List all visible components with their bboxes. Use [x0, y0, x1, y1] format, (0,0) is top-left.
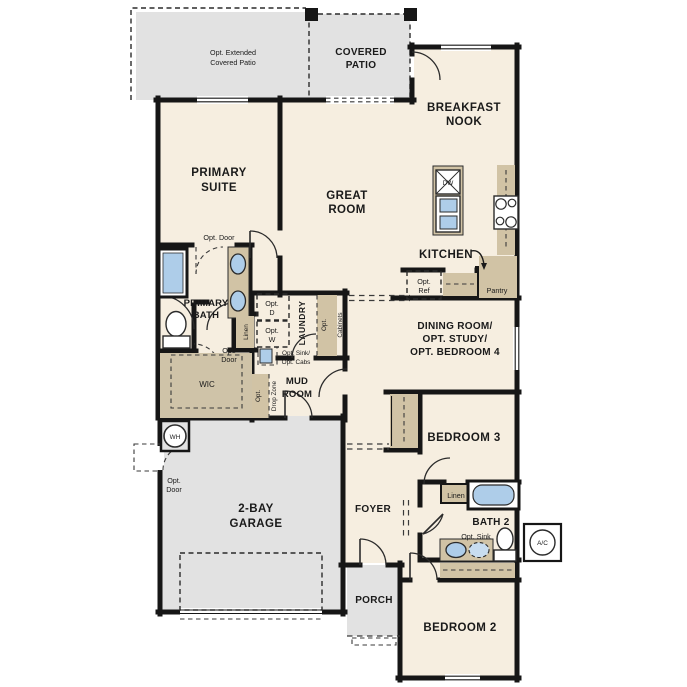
kitchen-label: KITCHEN	[419, 249, 473, 261]
opt-door-wic-label: Opt.	[222, 346, 236, 355]
water-heater-label: WH	[170, 434, 181, 441]
opt-extended-patio-label: Opt. Extended	[210, 48, 256, 57]
covered-patio-label: COVERED	[335, 47, 387, 58]
opt-cabinets-label: Opt.	[321, 319, 328, 331]
opt-dryer-label: Opt.	[265, 299, 279, 308]
opt-door-wic-label: Door	[221, 355, 237, 364]
opt-extended-patio-label: Covered Patio	[210, 58, 256, 67]
opt-door-suite-label: Opt. Door	[203, 233, 235, 242]
opt-drop-zone-label: Opt.	[255, 390, 262, 402]
foyer-label: FOYER	[355, 504, 391, 515]
opt-sink-cabs-label: Opt. Sink/	[282, 350, 310, 357]
great-room-label: ROOM	[328, 204, 365, 216]
laundry-label: LAUNDRY	[297, 301, 307, 346]
bath2-sink	[446, 543, 466, 558]
opt-door-garage-label: Opt.	[167, 476, 181, 485]
linen-bath2-label: Linen	[447, 491, 465, 500]
covered-patio-label: PATIO	[346, 60, 377, 71]
opt-washer-label: Opt.	[265, 326, 279, 335]
vanity-sink	[231, 291, 246, 311]
porch-step	[352, 638, 396, 645]
opt-sink-bath2-label: Opt. Sink	[461, 532, 491, 541]
primary-bath-label: BATH	[193, 310, 219, 321]
ac-label: A/C	[537, 540, 548, 547]
dining-label: OPT. BEDROOM 4	[410, 347, 500, 358]
opt-ref-label: Opt.	[417, 277, 431, 286]
great-room-label: GREAT	[326, 190, 367, 202]
toilet-primary	[166, 312, 186, 337]
opt-washer-label: W	[269, 335, 276, 344]
bath2-opt-sink	[469, 543, 489, 558]
opt-door-garage-label: Door	[166, 485, 182, 494]
primary-bath-label: PRIMARY	[184, 298, 229, 309]
breakfast-nook-label: NOOK	[446, 116, 482, 128]
opt-ref-label: Ref	[418, 286, 429, 295]
patio-post	[305, 8, 318, 21]
toilet-bath2	[497, 528, 513, 550]
mud-room-label: ROOM	[282, 389, 312, 400]
bath2-label: BATH 2	[472, 517, 509, 528]
bedroom3-label: BEDROOM 3	[427, 432, 500, 444]
floor-plan-drawing: Opt. Extended Covered Patio COVERED PATI…	[0, 0, 687, 687]
opt-sink-cabs-label: Opt. Cabs	[282, 359, 311, 366]
garage-label: 2-BAY	[238, 503, 273, 515]
wic-label: WIC	[199, 380, 215, 389]
opt-drop-zone-label: Drop Zone	[271, 380, 278, 411]
breakfast-nook-label: BREAKFAST	[427, 102, 501, 114]
vanity-sink	[231, 254, 246, 274]
opt-dryer-label: D	[269, 308, 274, 317]
garage-label: GARAGE	[230, 518, 283, 530]
linen-primary-label: Linen	[243, 324, 250, 340]
laundry-opt-sink	[260, 349, 272, 363]
primary-suite-label: PRIMARY	[191, 167, 246, 179]
porch-label: PORCH	[355, 595, 393, 606]
dining-label: OPT. STUDY/	[423, 334, 488, 345]
opt-cabinets-label: Cabinets	[337, 312, 344, 337]
floor-plan-page: Opt. Extended Covered Patio COVERED PATI…	[0, 0, 687, 687]
bedroom2-label: BEDROOM 2	[423, 622, 496, 634]
dining-label: DINING ROOM/	[417, 321, 492, 332]
dishwasher-label: DW	[443, 180, 455, 187]
primary-suite-label: SUITE	[201, 182, 237, 194]
pantry-label: Pantry	[487, 286, 508, 295]
mud-room-label: MUD	[286, 376, 308, 387]
patio-post	[404, 8, 417, 21]
